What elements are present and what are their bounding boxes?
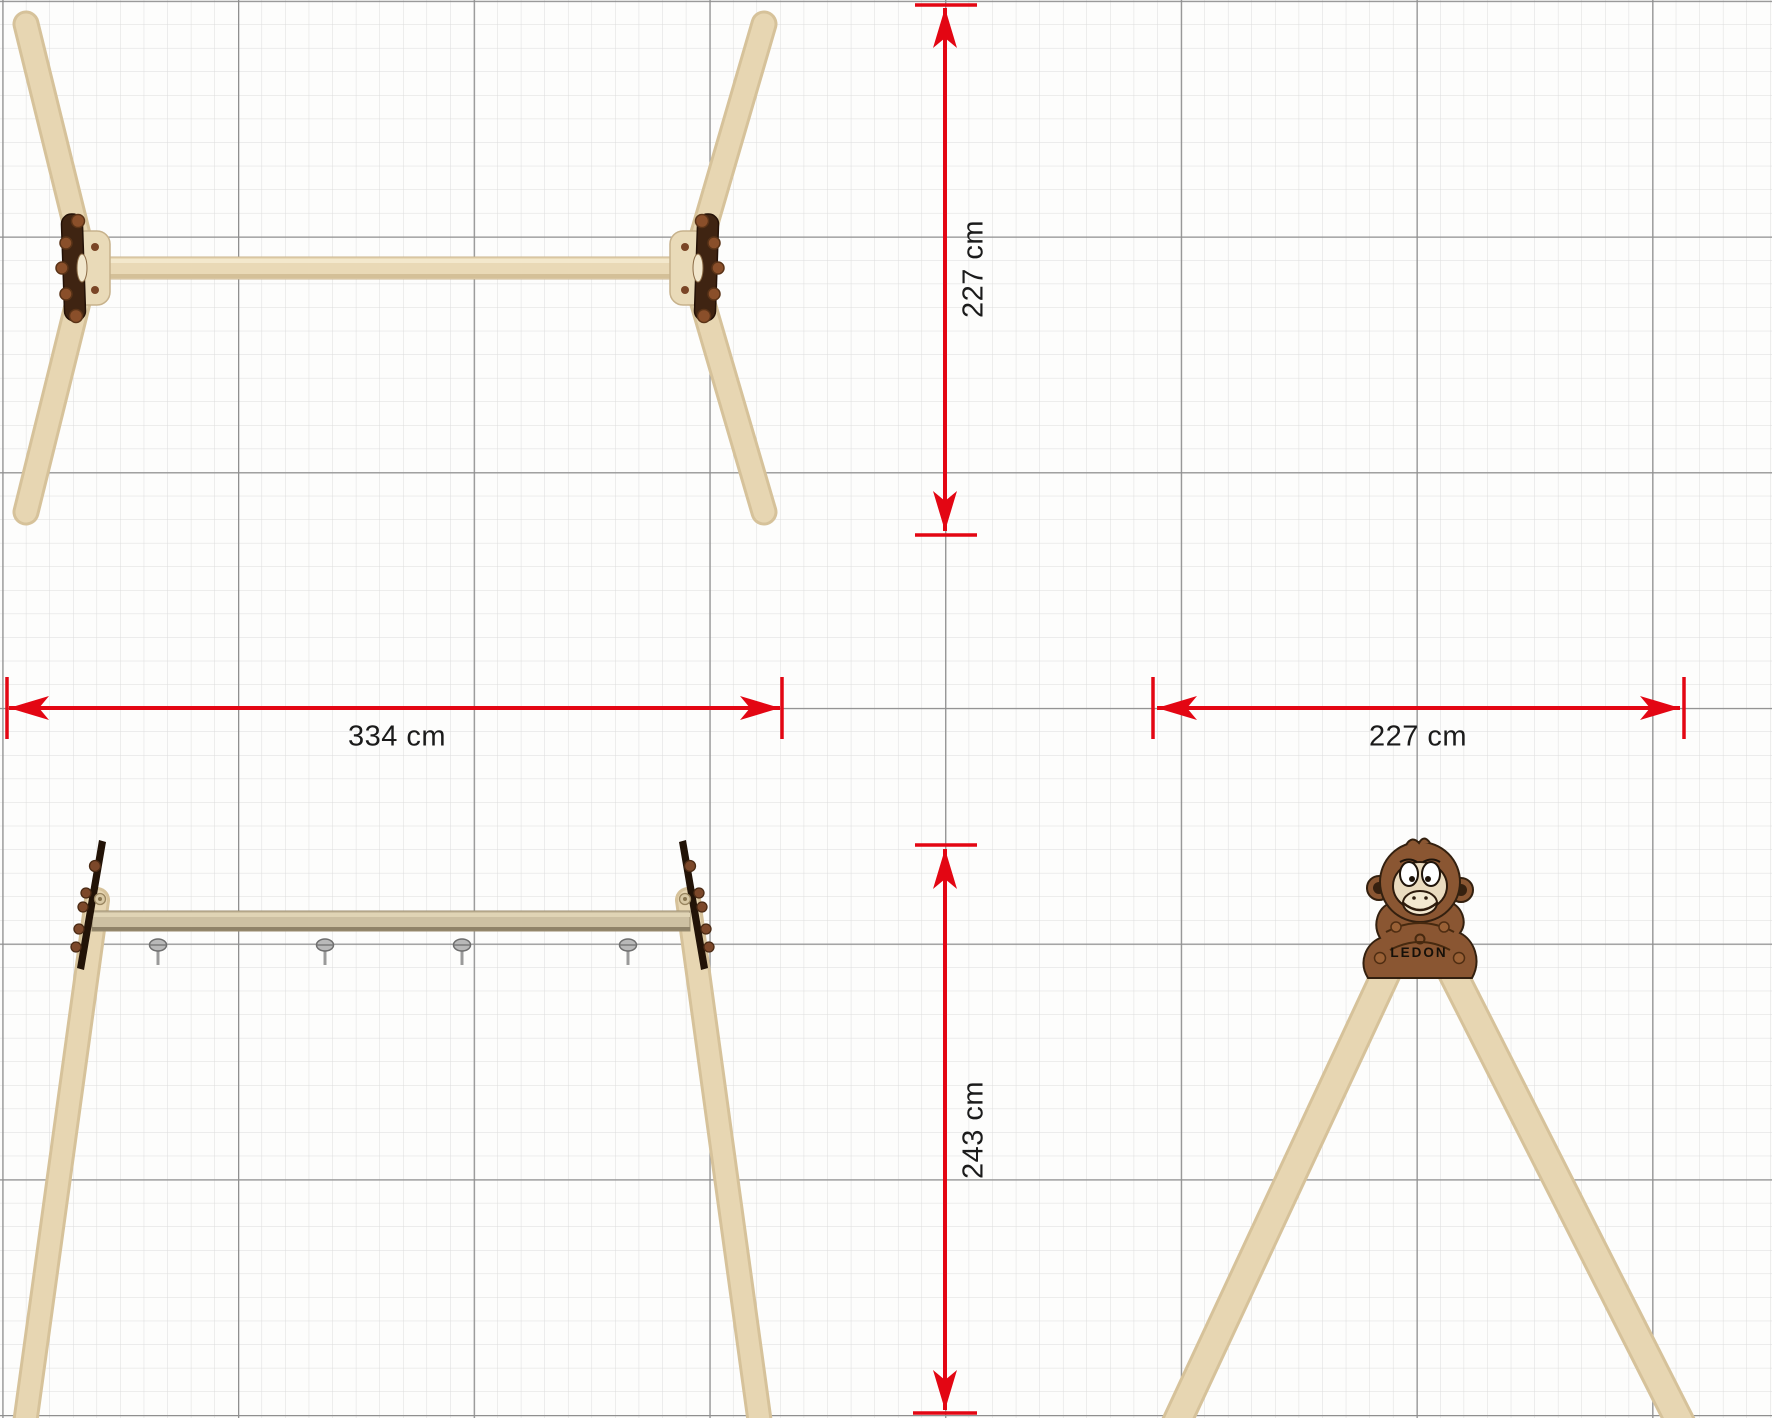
technical-drawing-page: LEDON 334 cm 227 cm 227 cm 243 cm	[0, 0, 1772, 1418]
dimension-label-frame-depth: 227 cm	[958, 220, 991, 318]
dimension-label-frame-height: 243 cm	[958, 1081, 991, 1179]
drawing-canvas: LEDON	[0, 0, 1772, 1418]
dimension-label-frame-width: 227 cm	[1369, 721, 1467, 754]
front-view-beam	[92, 911, 690, 931]
ledon-logo-text: LEDON	[1390, 945, 1447, 960]
dimension-label-overall-width: 334 cm	[348, 721, 446, 754]
top-view-beam	[88, 257, 680, 279]
